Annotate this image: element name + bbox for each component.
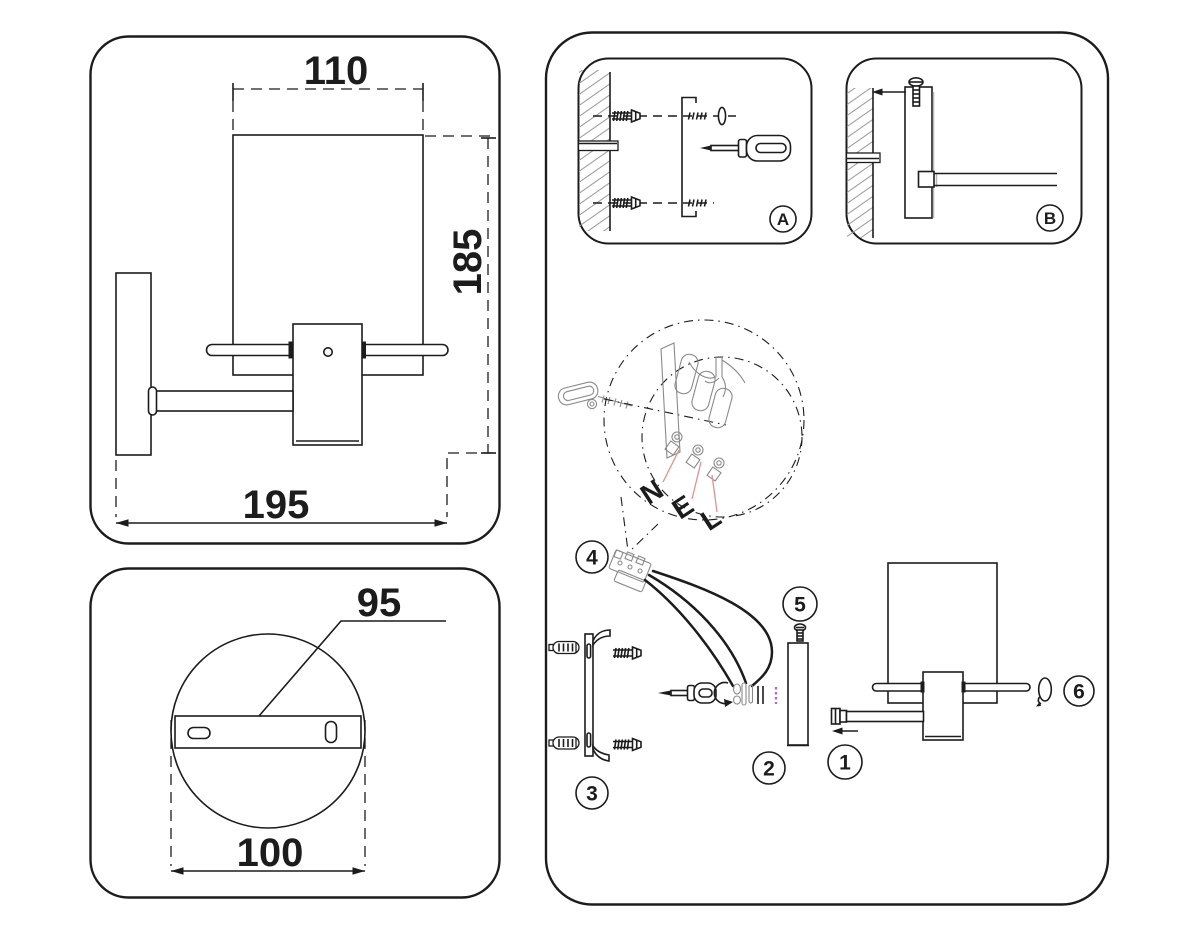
wire-end-connector: [734, 683, 764, 705]
step-b-panel: B: [847, 59, 1082, 244]
leader-neutral: [663, 450, 679, 482]
part-3-label: 3: [586, 783, 598, 806]
part-4-label: 4: [586, 547, 598, 570]
mounting-bar: [175, 716, 361, 748]
holder-exploded: [921, 672, 966, 740]
instruction-sheet: 110 185 195: [0, 0, 1200, 933]
balloon-outer-circle: [604, 320, 804, 520]
part-2-label: 2: [763, 758, 775, 781]
part-6-label: 6: [1073, 681, 1085, 704]
part-5-screw: 5: [783, 587, 817, 641]
part-4-badge: 4: [576, 541, 608, 573]
part-5-label: 5: [794, 594, 806, 617]
step-b-badge: B: [1037, 205, 1063, 231]
screwdriver-turn-icon: [658, 683, 733, 708]
wire-neutral-label: N: [635, 474, 669, 511]
dim-plate-leader-label: 95: [357, 581, 402, 625]
part-6-badge: 6: [1064, 676, 1094, 706]
part-5-badge: 5: [783, 587, 817, 621]
step-b-label: B: [1044, 209, 1056, 228]
dim-top-width-label: 110: [304, 49, 369, 93]
arm-bolt-part: [832, 709, 924, 725]
part-4-wire-assembly: 4: [576, 541, 776, 707]
lamp-holder: [289, 324, 367, 445]
mounting-screw-icon: [613, 647, 641, 659]
wall-plate: [116, 273, 151, 455]
wiring-detail-balloon: N E L: [557, 320, 804, 552]
step-a-panel: A: [579, 59, 812, 244]
backplate-column-part: [788, 643, 808, 745]
diagram-canvas: 110 185 195: [0, 0, 1200, 933]
wall-stud-b: [847, 153, 881, 163]
dim-height-label: 185: [446, 229, 490, 296]
wall-anchor-icon: [549, 642, 579, 654]
washer-icon: [718, 107, 725, 124]
part-3-bracket-hardware: 3: [549, 630, 641, 809]
side-view-border: [91, 37, 500, 544]
lamp-arm: [156, 391, 293, 411]
mounting-screw-icon: [613, 739, 641, 751]
screwdriver-icon: [700, 136, 791, 162]
part-1-badge: 1: [828, 745, 862, 779]
part-2-badge: 2: [753, 752, 785, 784]
dim-depth-label: 195: [243, 483, 310, 527]
wall-stud-a: [579, 141, 619, 151]
cable-clamp-sketch: [557, 380, 632, 408]
terminal-block-small: [609, 550, 652, 593]
part-1-label: 1: [839, 752, 851, 775]
step-a-badge: A: [770, 206, 796, 232]
wire-live-label: L: [695, 501, 726, 536]
part-3-badge: 3: [576, 777, 608, 809]
small-screw-icon: [795, 624, 806, 641]
mounting-bracket-part: [585, 630, 610, 761]
panel-installation: A: [546, 33, 1108, 905]
push-arrow-icon: [872, 89, 906, 96]
insert-arrow-icon: [832, 728, 858, 735]
installation-border: [546, 33, 1108, 905]
arm-flange: [149, 387, 157, 415]
end-nut-part: [1036, 678, 1051, 707]
arm-connector-b: [919, 172, 935, 188]
panel-backplate-view: 95 100: [91, 569, 500, 898]
step-a-label: A: [777, 210, 789, 229]
wall-anchor-icon: [549, 737, 579, 749]
lamp-assembly-exploded: 1 6: [828, 563, 1094, 779]
part-2-backplate: 2: [753, 643, 809, 784]
wire-strand: [649, 575, 746, 683]
dim-plate-width-label: 100: [237, 831, 304, 875]
panel-side-view: 110 185 195: [91, 37, 500, 544]
